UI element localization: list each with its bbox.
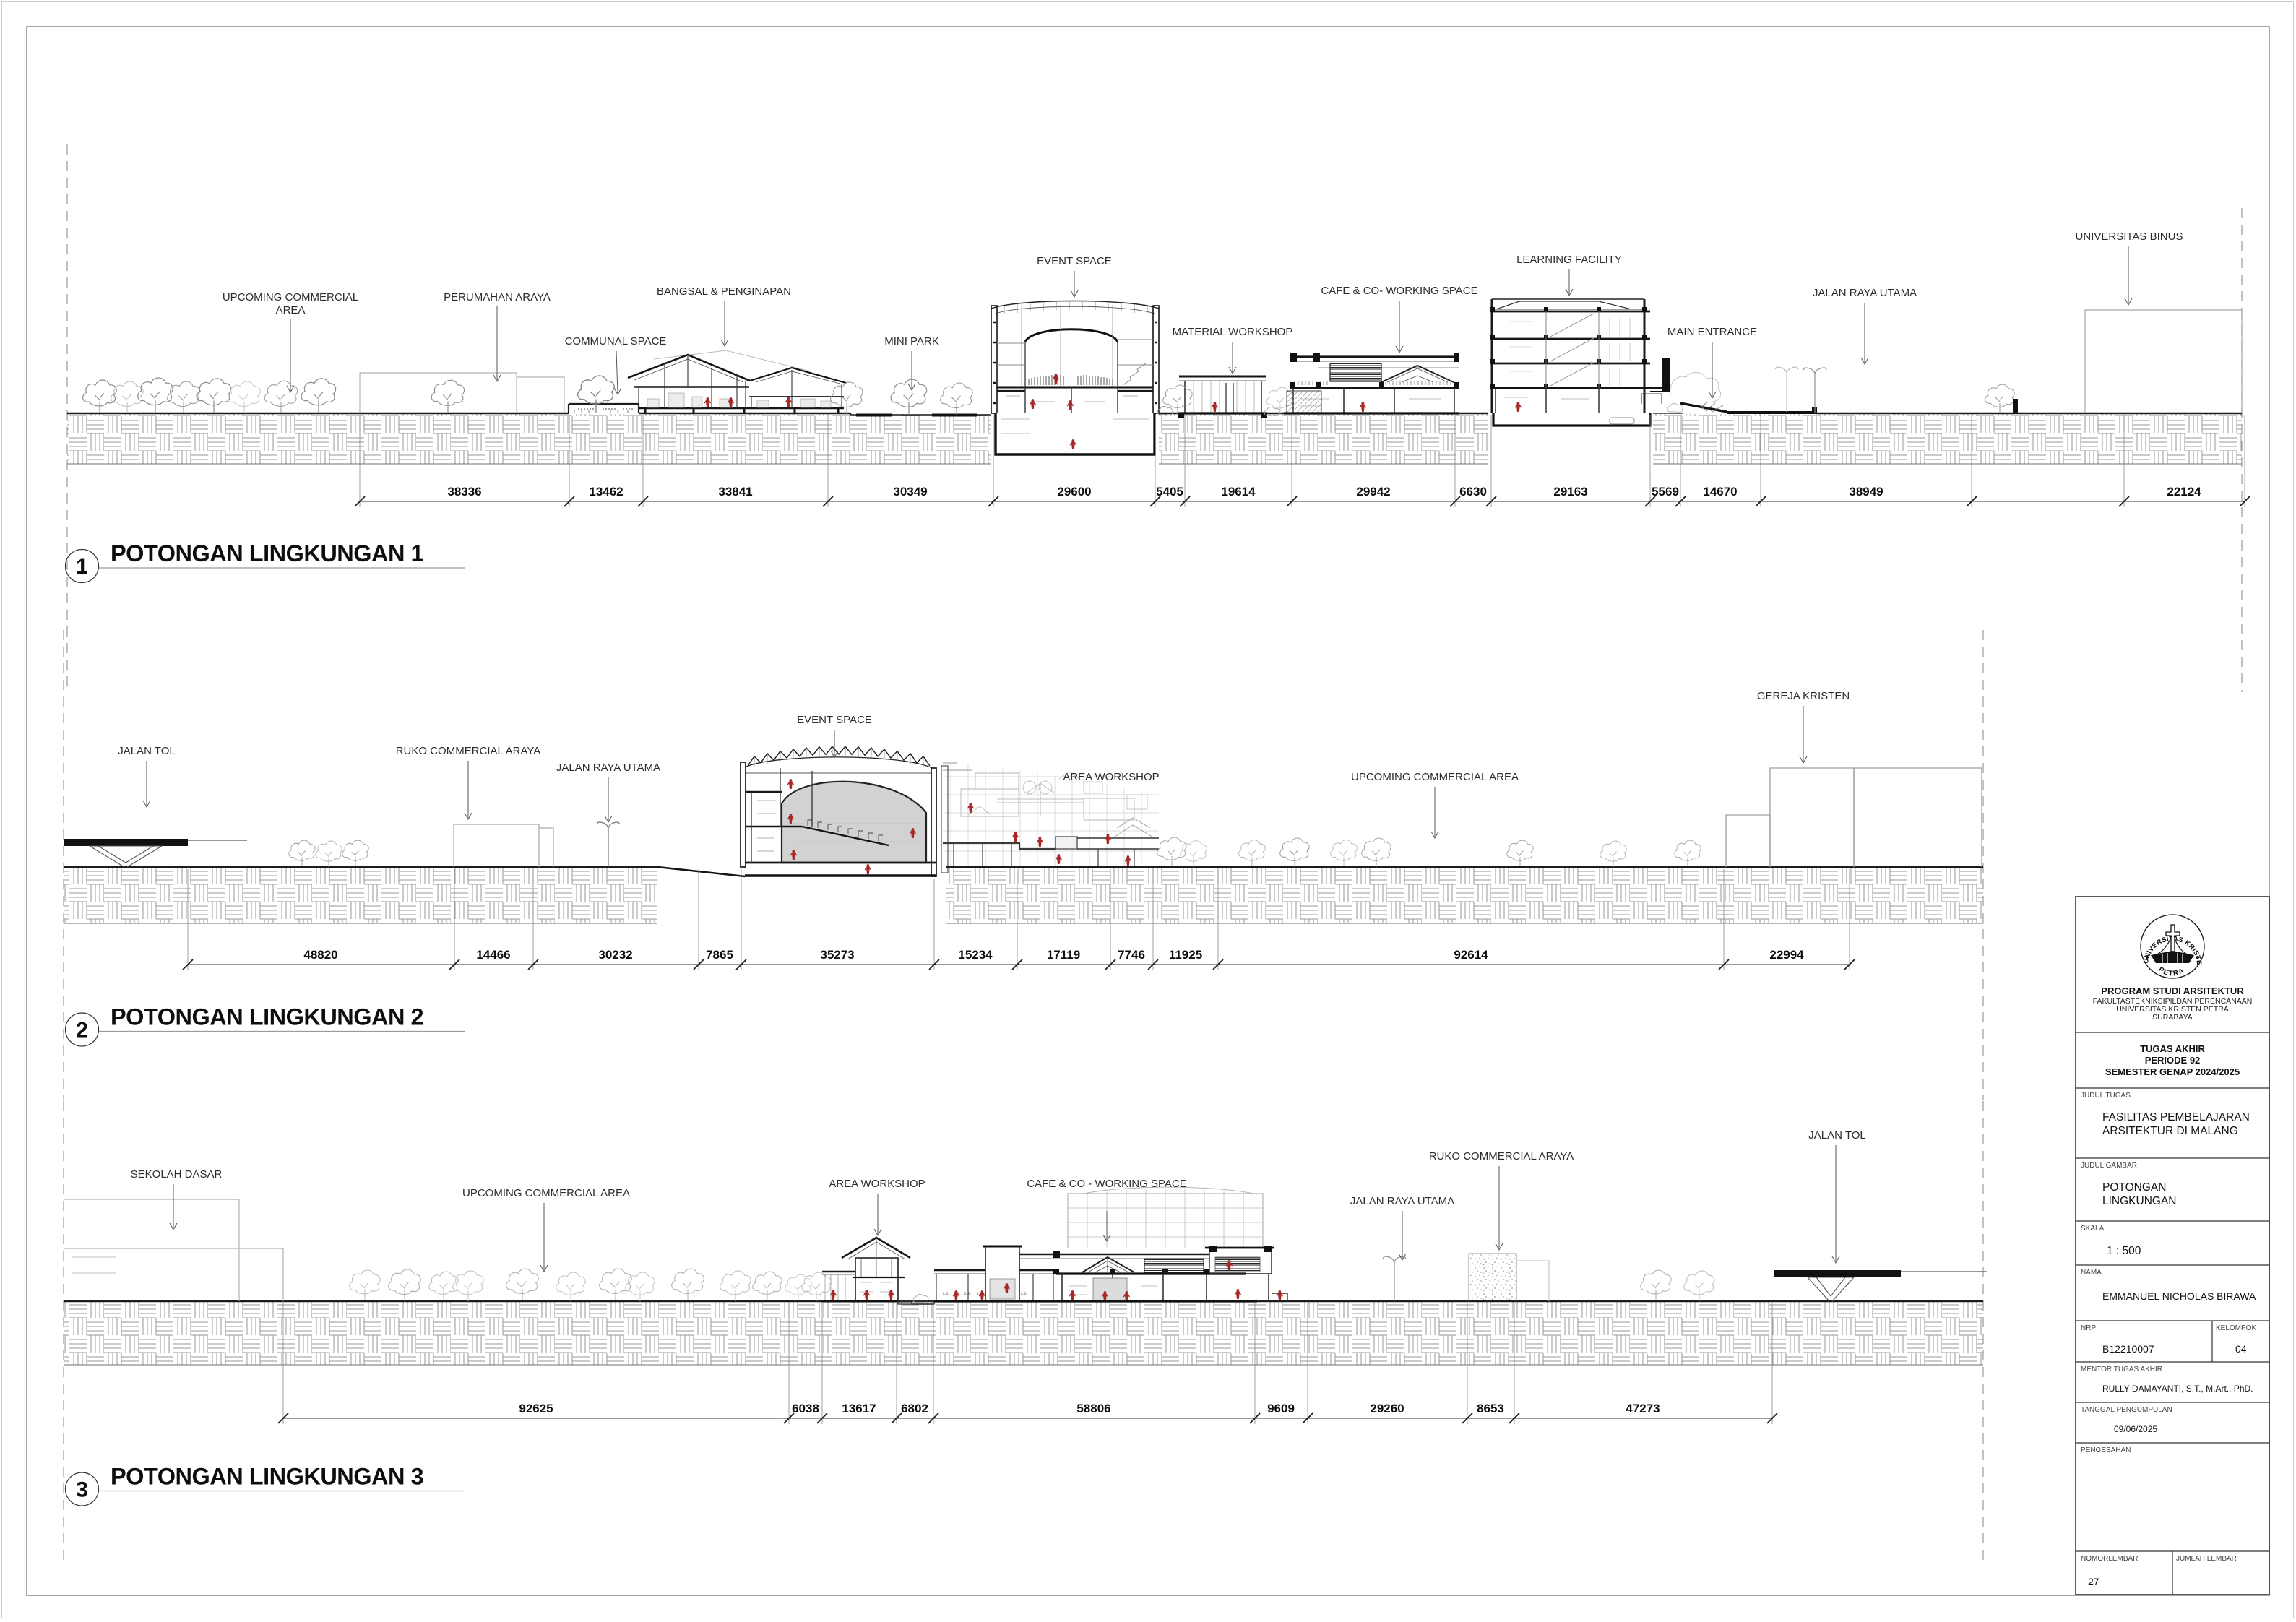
svg-text:JALAN RAYA UTAMA: JALAN RAYA UTAMA — [556, 762, 660, 774]
svg-text:MINI PARK: MINI PARK — [884, 335, 939, 348]
svg-text:27: 27 — [2088, 1576, 2099, 1587]
svg-text:9609: 9609 — [1267, 1402, 1295, 1415]
svg-text:CAFE & CO - WORKING SPACE: CAFE & CO - WORKING SPACE — [1027, 1178, 1186, 1190]
svg-text:UPCOMING COMMERCIAL AREA: UPCOMING COMMERCIAL AREA — [462, 1187, 630, 1199]
svg-text:NAMA: NAMA — [2081, 1269, 2102, 1277]
svg-text:MATERIAL WORKSHOP: MATERIAL WORKSHOP — [1173, 326, 1293, 338]
svg-text:92614: 92614 — [1454, 948, 1488, 962]
svg-text:UPCOMING COMMERCIAL: UPCOMING COMMERCIAL — [223, 291, 358, 303]
svg-text:1: 1 — [76, 555, 88, 579]
svg-text:22124: 22124 — [2167, 485, 2201, 499]
svg-text:POTONGAN: POTONGAN — [2102, 1181, 2166, 1194]
svg-text:38336: 38336 — [447, 485, 481, 499]
svg-text:LINGKUNGAN: LINGKUNGAN — [2102, 1195, 2177, 1207]
svg-text:22994: 22994 — [1769, 948, 1804, 962]
svg-text:8653: 8653 — [1477, 1402, 1504, 1415]
svg-text:CAFE & CO- WORKING SPACE: CAFE & CO- WORKING SPACE — [1321, 285, 1477, 297]
svg-text:EVENT SPACE: EVENT SPACE — [797, 714, 872, 726]
svg-text:UPCOMING COMMERCIAL AREA: UPCOMING COMMERCIAL AREA — [1351, 771, 1519, 783]
svg-text:BANGSAL & PENGINAPAN: BANGSAL & PENGINAPAN — [657, 285, 791, 298]
svg-text:PENGESAHAN: PENGESAHAN — [2081, 1446, 2131, 1454]
svg-text:MAIN ENTRANCE: MAIN ENTRANCE — [1667, 326, 1757, 338]
svg-text:JUDUL GAMBAR: JUDUL GAMBAR — [2081, 1162, 2137, 1170]
svg-text:2: 2 — [76, 1019, 88, 1043]
svg-text:29260: 29260 — [1370, 1402, 1404, 1415]
svg-text:AREA WORKSHOP: AREA WORKSHOP — [829, 1178, 925, 1190]
svg-text:KELOMPOK: KELOMPOK — [2216, 1324, 2256, 1332]
svg-text:04: 04 — [2235, 1343, 2247, 1355]
svg-text:6630: 6630 — [1459, 485, 1487, 499]
svg-text:MENTOR TUGAS AKHIR: MENTOR TUGAS AKHIR — [2081, 1366, 2162, 1373]
svg-text:SEMESTER GENAP 2024/2025: SEMESTER GENAP 2024/2025 — [2105, 1066, 2240, 1077]
svg-text:POTONGAN LINGKUNGAN 1: POTONGAN LINGKUNGAN 1 — [111, 540, 424, 566]
svg-text:POTONGAN LINGKUNGAN 2: POTONGAN LINGKUNGAN 2 — [111, 1004, 423, 1030]
svg-text:SEKOLAH DASAR: SEKOLAH DASAR — [131, 1168, 223, 1181]
svg-text:29600: 29600 — [1057, 485, 1091, 499]
svg-text:29163: 29163 — [1553, 485, 1587, 499]
svg-text:TANGGAL PENGUMPULAN: TANGGAL PENGUMPULAN — [2081, 1406, 2172, 1414]
svg-text:NRP: NRP — [2081, 1324, 2096, 1332]
svg-text:13462: 13462 — [589, 485, 623, 499]
svg-text:15234: 15234 — [958, 948, 993, 962]
svg-text:13617: 13617 — [842, 1402, 876, 1415]
svg-text:JALAN RAYA UTAMA: JALAN RAYA UTAMA — [1813, 287, 1917, 299]
svg-text:6038: 6038 — [792, 1402, 819, 1415]
svg-text:RULLY DAMAYANTI, S.T., M.Art.,: RULLY DAMAYANTI, S.T., M.Art., PhD. — [2102, 1384, 2253, 1394]
svg-text:17119: 17119 — [1047, 948, 1080, 962]
svg-text:PERUMAHAN ARAYA: PERUMAHAN ARAYA — [444, 291, 551, 303]
svg-text:PROGRAM STUDI ARSITEKTUR: PROGRAM STUDI ARSITEKTUR — [2101, 985, 2244, 996]
svg-text:JUMLAH LEMBAR: JUMLAH LEMBAR — [2176, 1555, 2237, 1563]
svg-text:FASILITAS PEMBELAJARAN: FASILITAS PEMBELAJARAN — [2102, 1111, 2250, 1123]
svg-text:B12210007: B12210007 — [2102, 1343, 2154, 1355]
svg-text:EMMANUEL NICHOLAS BIRAWA: EMMANUEL NICHOLAS BIRAWA — [2102, 1290, 2256, 1302]
svg-text:48820: 48820 — [303, 948, 337, 962]
svg-text:SURABAYA: SURABAYA — [2152, 1013, 2193, 1022]
svg-text:JUDUL TUGAS: JUDUL TUGAS — [2081, 1092, 2131, 1100]
svg-text:38949: 38949 — [1849, 485, 1883, 499]
svg-text:11925: 11925 — [1169, 948, 1202, 962]
svg-text:14670: 14670 — [1703, 485, 1737, 499]
svg-text:TUGAS AKHIR: TUGAS AKHIR — [2140, 1043, 2205, 1054]
svg-text:7746: 7746 — [1118, 948, 1145, 962]
svg-text:30232: 30232 — [598, 948, 632, 962]
svg-text:AREA WORKSHOP: AREA WORKSHOP — [1063, 771, 1159, 783]
svg-text:SKALA: SKALA — [2081, 1225, 2105, 1233]
svg-text:AREA: AREA — [276, 304, 306, 316]
svg-text:58806: 58806 — [1076, 1402, 1110, 1415]
svg-text:RUKO COMMERCIAL ARAYA: RUKO COMMERCIAL ARAYA — [1429, 1150, 1574, 1162]
svg-text:PERIODE 92: PERIODE 92 — [2145, 1055, 2201, 1066]
svg-text:COMMUNAL SPACE: COMMUNAL SPACE — [565, 335, 667, 348]
svg-text:UNIVERSITAS BINUS: UNIVERSITAS BINUS — [2076, 230, 2183, 243]
svg-text:3: 3 — [76, 1478, 88, 1502]
svg-text:92625: 92625 — [519, 1402, 553, 1415]
svg-text:LEARNING FACILITY: LEARNING FACILITY — [1516, 254, 1622, 266]
svg-text:47273: 47273 — [1626, 1402, 1660, 1415]
svg-text:35273: 35273 — [820, 948, 854, 962]
svg-text:ARSITEKTUR DI MALANG: ARSITEKTUR DI MALANG — [2102, 1125, 2238, 1137]
svg-text:1 : 500: 1 : 500 — [2107, 1245, 2141, 1257]
svg-text:14466: 14466 — [476, 948, 510, 962]
svg-text:JALAN RAYA UTAMA: JALAN RAYA UTAMA — [1350, 1195, 1454, 1207]
svg-text:GEREJA KRISTEN: GEREJA KRISTEN — [1757, 690, 1850, 702]
svg-text:5569: 5569 — [1652, 485, 1679, 499]
svg-text:EVENT SPACE: EVENT SPACE — [1037, 255, 1112, 267]
svg-text:5405: 5405 — [1156, 485, 1183, 499]
svg-text:6802: 6802 — [901, 1402, 928, 1415]
svg-text:JALAN TOL: JALAN TOL — [1808, 1129, 1865, 1142]
svg-text:33841: 33841 — [718, 485, 752, 499]
svg-text:29942: 29942 — [1356, 485, 1390, 499]
svg-text:JALAN TOL: JALAN TOL — [118, 745, 175, 757]
svg-text:RUKO COMMERCIAL ARAYA: RUKO COMMERCIAL ARAYA — [396, 745, 541, 757]
svg-text:09/06/2025: 09/06/2025 — [2114, 1424, 2157, 1434]
svg-text:30349: 30349 — [893, 485, 927, 499]
svg-text:19614: 19614 — [1221, 485, 1256, 499]
svg-text:POTONGAN LINGKUNGAN 3: POTONGAN LINGKUNGAN 3 — [111, 1464, 423, 1490]
svg-text:7865: 7865 — [706, 948, 733, 962]
svg-text:NOMORLEMBAR: NOMORLEMBAR — [2081, 1555, 2138, 1563]
